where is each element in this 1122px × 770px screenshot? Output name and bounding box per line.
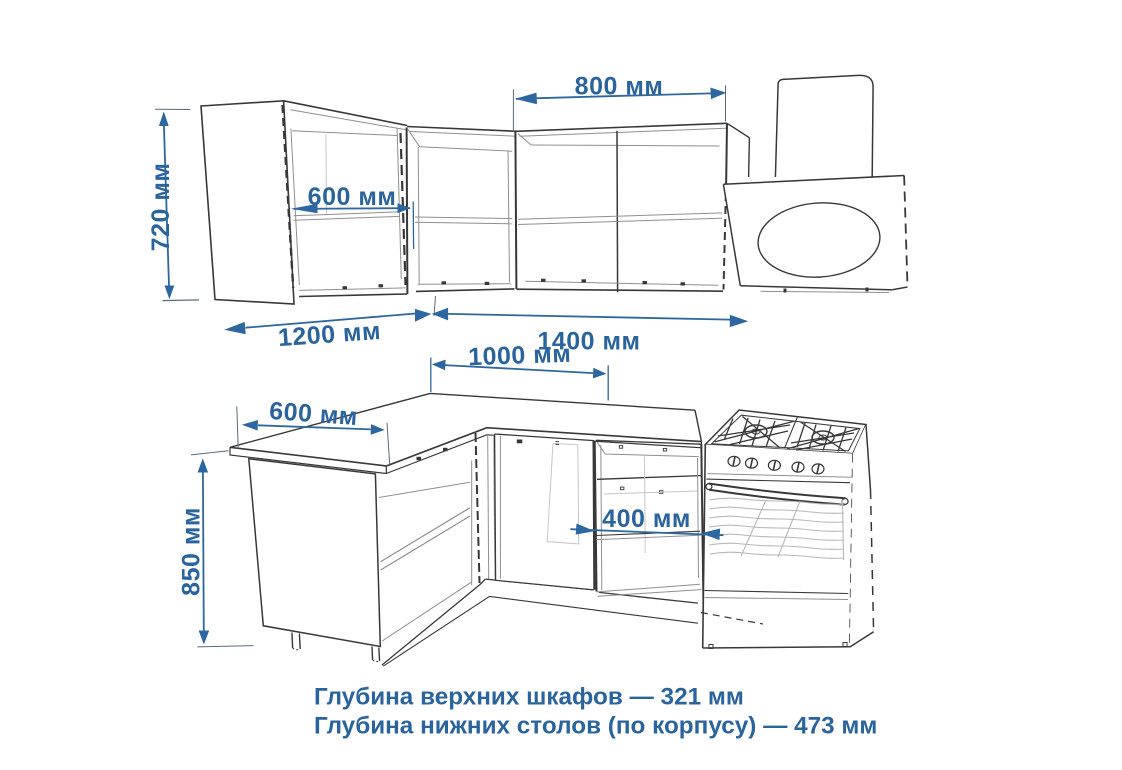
svg-text:720 мм: 720 мм — [147, 163, 175, 252]
svg-text:1000 мм: 1000 мм — [468, 340, 572, 372]
svg-text:Глубина нижних столов (по корп: Глубина нижних столов (по корпусу) — 473… — [314, 713, 877, 740]
svg-text:800 мм: 800 мм — [575, 73, 664, 101]
svg-text:850 мм: 850 мм — [178, 507, 206, 596]
svg-text:400 мм: 400 мм — [602, 505, 691, 533]
svg-text:Глубина верхних шкафов — 321 м: Глубина верхних шкафов — 321 мм — [314, 684, 744, 711]
svg-text:600 мм: 600 мм — [308, 183, 397, 211]
